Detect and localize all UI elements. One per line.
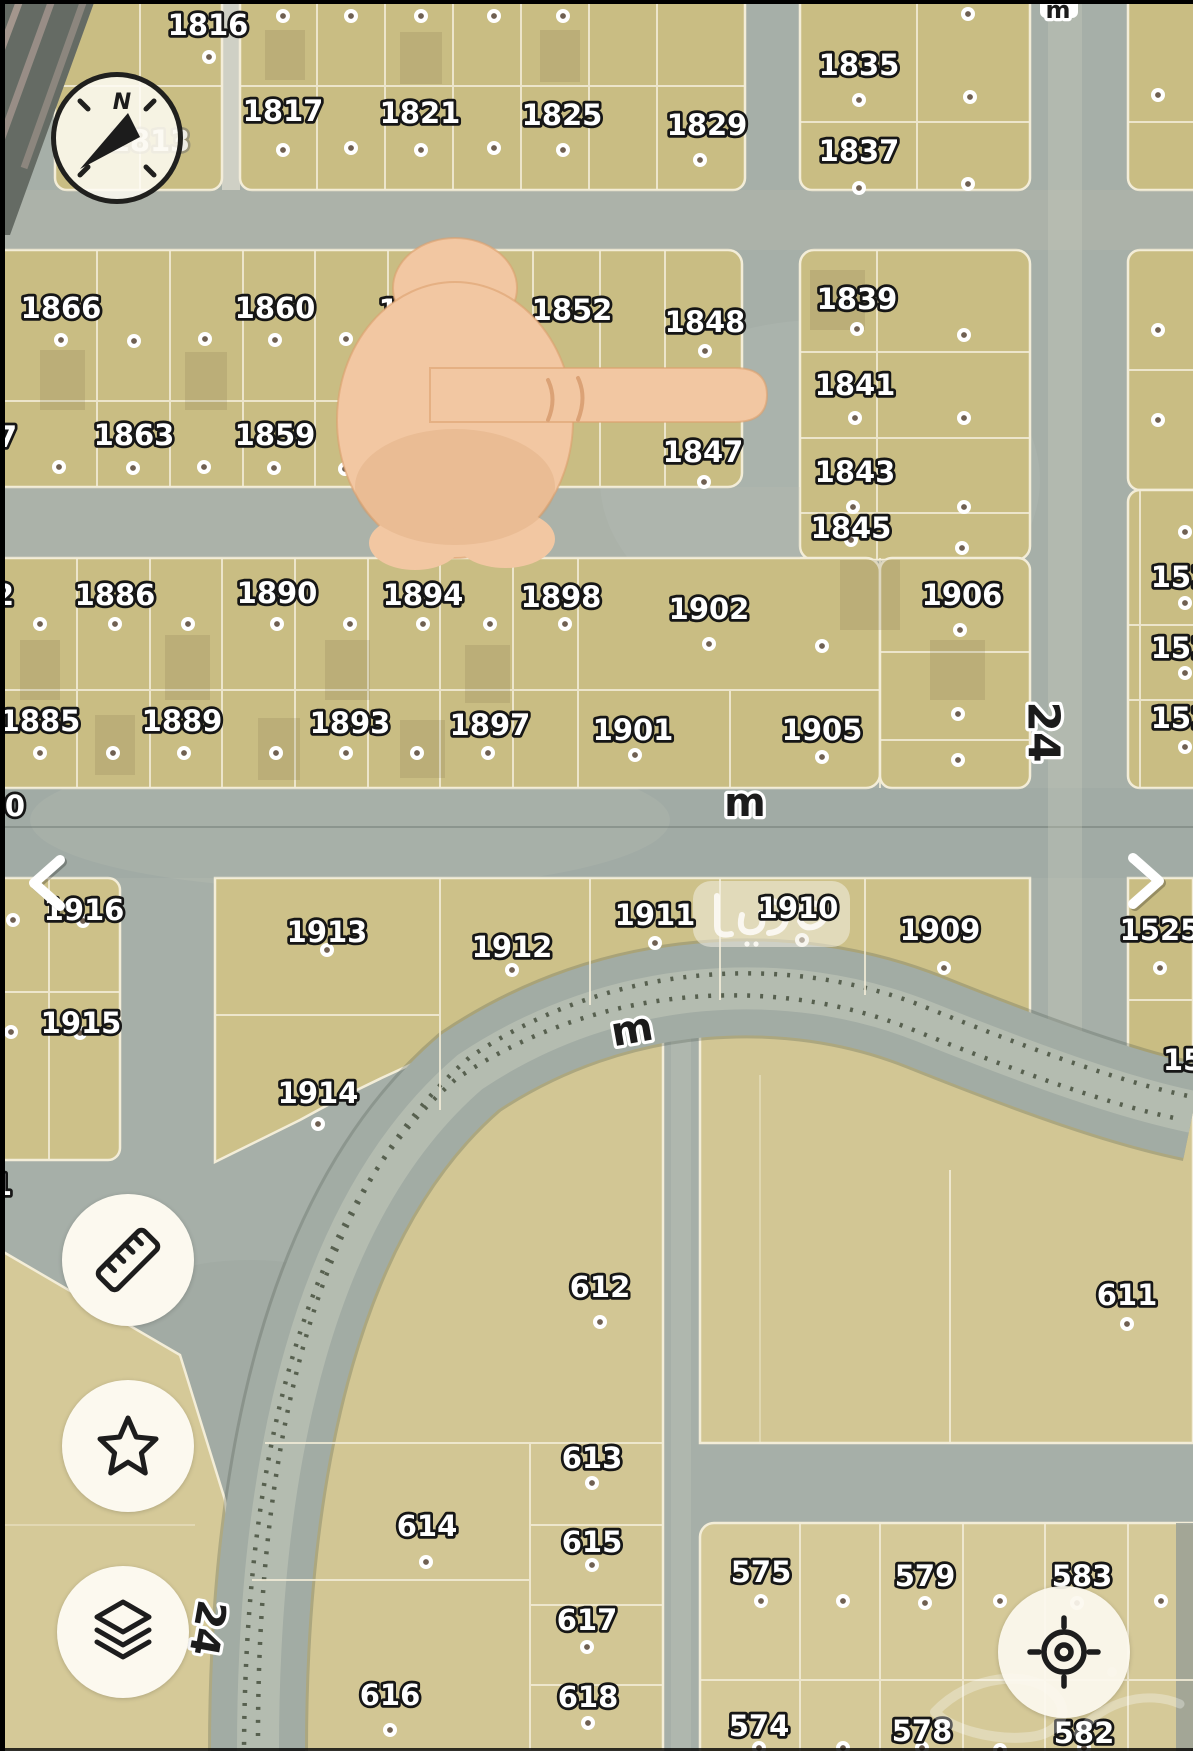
parcel-label-1859: 1859 [235,418,316,452]
parcel-label-1843: 1843 [815,455,896,489]
parcel-dot [505,963,519,977]
parcel-label-618: 618 [558,1680,619,1714]
parcel-label-1835: 1835 [819,48,900,82]
parcel-dot [414,9,428,23]
parcel-label-1889: 1889 [142,704,223,738]
parcel-label-1886: 1886 [75,578,156,612]
parcel-label-1866: 1866 [21,291,102,325]
parcel-dot [52,460,66,474]
parcel-dot [1178,666,1192,680]
parcel-label-614: 614 [397,1509,458,1543]
parcel-dot [1151,88,1165,102]
parcel-label-1856: 1856 [379,293,460,327]
map-screen: 1813 18161817182118251829183518371866186… [0,0,1193,1751]
compass-button[interactable]: N [51,72,183,204]
parcel-dot [953,623,967,637]
parcel-label-1897: 1897 [450,708,531,742]
parcel-dot [198,332,212,346]
parcel-dot [1178,525,1192,539]
parcel-dot [951,753,965,767]
parcel-label-1885: 1885 [0,704,80,738]
pan-left-chevron[interactable] [20,848,72,916]
left-edge [0,0,5,1751]
parcel-dot [585,1558,599,1572]
road-label-m: m [607,1004,656,1057]
parcel-dot [4,1025,18,1039]
parcel-label-1821: 1821 [380,96,461,130]
parcel-label-1817: 1817 [243,94,324,128]
parcel-dot [487,141,501,155]
parcel-label-1893: 1893 [310,706,391,740]
parcel-label-1911: 1911 [615,898,696,932]
parcel-dot [177,746,191,760]
parcel-dot [338,462,352,476]
parcel-dot [957,411,971,425]
parcel-label-1841: 1841 [815,368,896,402]
parcel-label-1852: 1852 [532,293,613,327]
parcel-dot [410,333,424,347]
parcel-dot [344,9,358,23]
parcel-dot [343,617,357,631]
parcel-label-1909: 1909 [900,913,981,947]
parcel-dot [33,746,47,760]
parcel-dot [268,333,282,347]
layers-button[interactable] [57,1566,189,1698]
parcel-dot [33,617,47,631]
parcel-label-1890: 1890 [237,576,318,610]
parcel-dot [1153,961,1167,975]
parcel-dot [1154,1594,1168,1608]
parcel-dot [1120,1317,1134,1331]
parcel-dot [54,333,68,347]
parcel-label-1906: 1906 [922,578,1003,612]
road-label-24: 24 [1018,701,1069,762]
parcel-dot [648,936,662,950]
parcel-dot [1151,413,1165,427]
parcel-dot [580,1640,594,1654]
parcel-dot [951,707,965,721]
parcel-dot [276,143,290,157]
parcel-label-612: 612 [570,1270,631,1304]
parcel-label-0: 0 [5,789,25,823]
parcel-label-1839: 1839 [817,282,898,316]
parcel-dot [993,1594,1007,1608]
parcel-dot [628,748,642,762]
parcel-dot [339,332,353,346]
parcel-label-1816: 1816 [168,8,249,42]
parcel-label-1825: 1825 [522,98,603,132]
parcel-label-1914: 1914 [278,1076,359,1110]
parcel-dot [181,617,195,631]
app-watermark [693,881,850,947]
parcel-dot [410,746,424,760]
parcel-label-574: 574 [729,1709,790,1743]
parcel-dot [126,461,140,475]
parcel-dot [815,750,829,764]
parcel-label-152: 152 [1151,560,1193,594]
parcel-label-1837: 1837 [819,134,900,168]
parcel-label-1898: 1898 [521,580,602,614]
parcel-dot [754,1594,768,1608]
parcel-label-1912: 1912 [472,930,553,964]
layers-icon [80,1589,166,1675]
parcel-dot [961,177,975,191]
parcel-dot [1151,323,1165,337]
parcel-dot [106,746,120,760]
parcel-dot [852,93,866,107]
parcel-label-1901: 1901 [593,713,674,747]
parcel-dot [693,153,707,167]
parcel-label-1829: 1829 [667,108,748,142]
parcel-dot [702,637,716,651]
parcel-dot [937,961,951,975]
parcel-dot [963,90,977,104]
locate-button[interactable] [998,1586,1130,1718]
parcel-dot [850,322,864,336]
star-icon [85,1403,171,1489]
parcel-dot [1178,740,1192,754]
parcel-dot [267,461,281,475]
parcel-dot [481,746,495,760]
parcel-dot [483,617,497,631]
parcel-dot [1178,596,1192,610]
pan-right-chevron[interactable] [1121,846,1173,914]
top-edge [0,0,1193,4]
parcel-dot [593,1315,607,1329]
parcel-label-15: 15 [1163,1043,1193,1077]
parcel-dot [383,1723,397,1737]
parcel-dot [127,334,141,348]
parcel-label-1913: 1913 [287,915,368,949]
parcel-label-617: 617 [557,1603,618,1637]
parcel-dot [487,9,501,23]
parcel-dot [848,411,862,425]
parcel-label-1845: 1845 [811,511,892,545]
parcel-dot [481,334,495,348]
road-label-m: m [724,780,766,826]
parcel-label-611: 611 [1097,1278,1158,1312]
crosshair-icon [1019,1607,1109,1697]
measure-button[interactable] [62,1194,194,1326]
parcel-label-1525: 1525 [1120,913,1193,947]
parcel-dot [698,344,712,358]
parcel-label-152: 152 [1151,701,1193,735]
parcel-dot [6,913,20,927]
parcel-label-1905: 1905 [782,713,863,747]
parcel-dot [269,746,283,760]
parcel-dot [419,1555,433,1569]
parcel-dot [270,617,284,631]
parcel-dot [344,141,358,155]
parcel-label-152: 152 [1151,631,1193,665]
parcel-dot [581,1716,595,1730]
map-canvas[interactable]: 1813 18161817182118251829183518371866186… [0,0,1193,1751]
ruler-icon [85,1217,171,1303]
parcel-label-1863: 1863 [94,418,175,452]
parcel-dot [556,143,570,157]
parcel-label-613: 613 [562,1441,623,1475]
compass-north-letter: N [113,90,131,115]
parcel-dot [836,1594,850,1608]
parcel-label-1894: 1894 [383,578,464,612]
parcel-dot [957,328,971,342]
parcel-label-616: 616 [360,1678,421,1712]
compass-needle [80,113,140,169]
parcel-dot [852,181,866,195]
parcel-dot [339,746,353,760]
parcel-dot [556,9,570,23]
parcel-dot [961,7,975,21]
parcel-label-575: 575 [731,1555,792,1589]
parcel-dot [585,1476,599,1490]
parcel-dot [108,617,122,631]
parcel-label-1847: 1847 [663,435,744,469]
parcel-label-1860: 1860 [235,291,316,325]
parcel-label-1848: 1848 [665,305,746,339]
parcel-dot [276,9,290,23]
parcel-label-1915: 1915 [41,1006,122,1040]
parcel-dot [957,500,971,514]
parcel-label-579: 579 [895,1559,956,1593]
parcel-dot [416,617,430,631]
parcel-dot [955,541,969,555]
parcel-dot [815,639,829,653]
parcel-label-615: 615 [562,1525,623,1559]
parcel-dot [414,143,428,157]
parcel-label-1902: 1902 [669,592,750,626]
parcel-dot [202,50,216,64]
parcel-dot [558,617,572,631]
parcel-dot [311,1117,325,1131]
parcel-dot [697,475,711,489]
parcel-dot [918,1596,932,1610]
parcel-dot [197,460,211,474]
favorites-button[interactable] [62,1380,194,1512]
